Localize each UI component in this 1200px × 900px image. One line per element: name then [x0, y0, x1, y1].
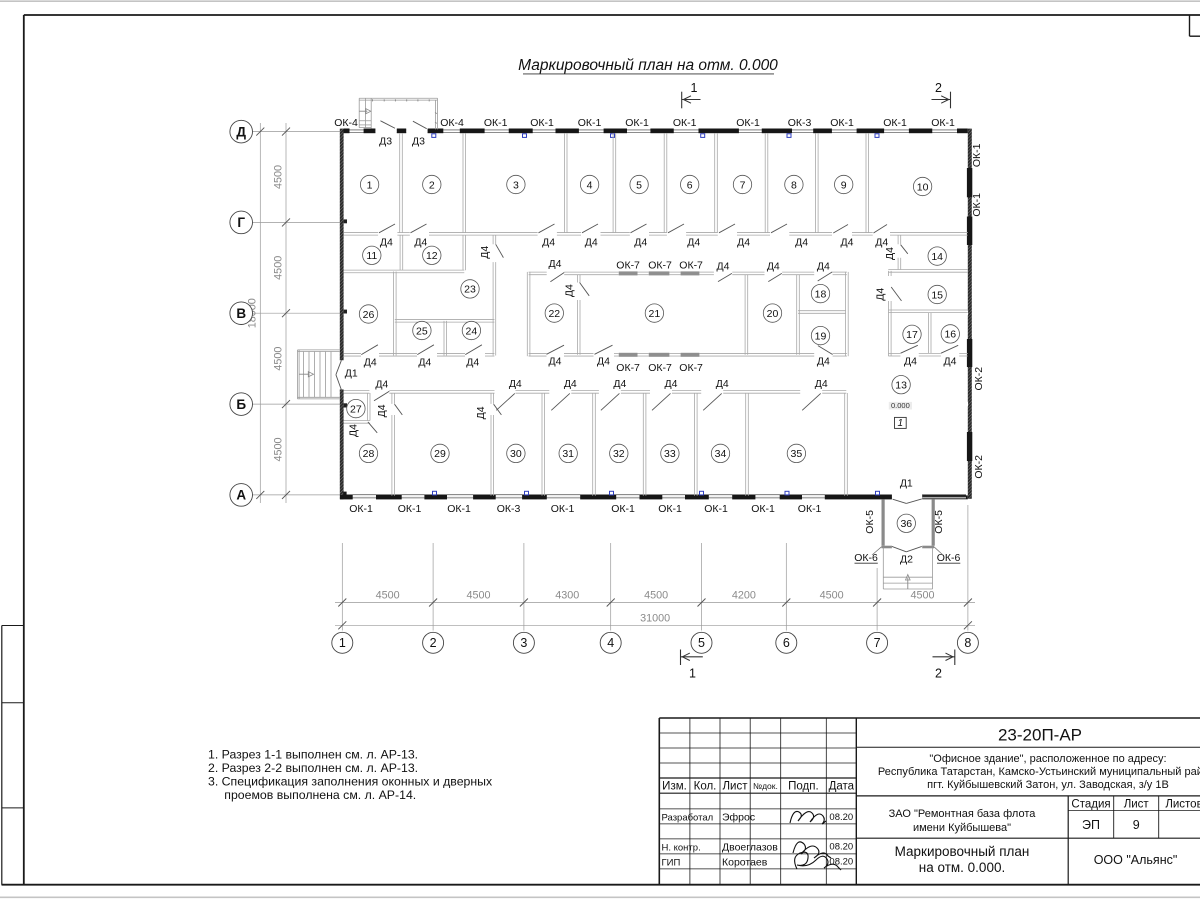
svg-text:Маркировочный план на отм. 0.0: Маркировочный план на отм. 0.000 — [518, 57, 778, 74]
svg-text:"Офисное здание", расположенно: "Офисное здание", расположенное по адрес… — [929, 753, 1166, 765]
svg-text:29: 29 — [434, 448, 446, 460]
svg-text:ООО "Альянс": ООО "Альянс" — [1094, 853, 1178, 867]
svg-text:8: 8 — [964, 636, 971, 650]
svg-text:Д4: Д4 — [380, 237, 393, 249]
svg-text:ОК-6: ОК-6 — [937, 552, 961, 564]
svg-text:20: 20 — [767, 308, 779, 320]
svg-text:Изм.: Изм. — [662, 781, 687, 793]
svg-text:Д4: Д4 — [479, 246, 491, 259]
svg-text:Д4: Д4 — [884, 247, 896, 260]
svg-text:26: 26 — [363, 309, 375, 321]
svg-text:0.000: 0.000 — [891, 401, 910, 410]
svg-text:8: 8 — [791, 179, 797, 191]
svg-text:ОК-4: ОК-4 — [334, 117, 358, 129]
svg-text:24: 24 — [466, 325, 478, 337]
svg-text:ОК-2: ОК-2 — [973, 455, 985, 479]
svg-text:4500: 4500 — [272, 347, 284, 371]
svg-text:Д4: Д4 — [466, 357, 479, 369]
svg-text:36: 36 — [900, 518, 912, 530]
svg-text:4: 4 — [587, 179, 593, 191]
svg-text:ОК-1: ОК-1 — [971, 193, 983, 217]
svg-text:Лист: Лист — [1124, 799, 1150, 811]
svg-text:3: 3 — [520, 636, 527, 650]
svg-text:1: 1 — [691, 81, 698, 95]
svg-text:пгт. Куйбышевский Затон, ул. З: пгт. Куйбышевский Затон, ул. Заводская, … — [927, 779, 1169, 791]
svg-text:15: 15 — [931, 289, 943, 301]
svg-text:2: 2 — [429, 179, 435, 191]
svg-text:1: 1 — [367, 179, 373, 191]
svg-text:на отм. 0.000.: на отм. 0.000. — [919, 860, 1005, 875]
svg-text:ОК-7: ОК-7 — [648, 362, 672, 374]
svg-text:5: 5 — [636, 179, 642, 191]
svg-text:3. Спецификация заполнения око: 3. Спецификация заполнения оконных и две… — [208, 774, 493, 788]
svg-text:Коротаев: Коротаев — [722, 856, 768, 868]
svg-text:ОК-1: ОК-1 — [830, 117, 854, 129]
svg-text:Д: Д — [236, 124, 246, 139]
svg-text:08.20: 08.20 — [829, 812, 853, 823]
svg-text:10: 10 — [917, 181, 929, 193]
svg-text:4500: 4500 — [272, 256, 284, 280]
svg-text:Д4: Д4 — [564, 378, 577, 390]
svg-text:Д4: Д4 — [717, 260, 730, 272]
svg-text:31: 31 — [562, 448, 574, 460]
svg-text:13: 13 — [895, 380, 907, 392]
svg-text:Д4: Д4 — [817, 356, 830, 368]
svg-text:6: 6 — [783, 636, 790, 650]
svg-text:Д4: Д4 — [376, 404, 388, 417]
svg-text:Д4: Д4 — [795, 237, 808, 249]
svg-text:В: В — [236, 306, 246, 321]
svg-text:№док.: №док. — [753, 781, 778, 791]
svg-text:Д3: Д3 — [412, 136, 425, 148]
svg-text:25: 25 — [416, 325, 428, 337]
svg-text:Д4: Д4 — [815, 378, 828, 390]
svg-text:Д4: Д4 — [475, 406, 487, 419]
svg-text:ОК-1: ОК-1 — [625, 117, 649, 129]
svg-text:ОК-1: ОК-1 — [736, 117, 760, 129]
svg-text:9: 9 — [841, 179, 847, 191]
svg-text:18: 18 — [815, 288, 827, 300]
svg-text:2: 2 — [935, 81, 942, 95]
svg-text:4500: 4500 — [820, 589, 844, 601]
svg-text:ОК-1: ОК-1 — [751, 503, 775, 515]
svg-text:ОК-7: ОК-7 — [616, 259, 640, 271]
svg-text:ОК-7: ОК-7 — [679, 259, 703, 271]
svg-text:Д4: Д4 — [564, 284, 576, 297]
svg-text:4500: 4500 — [272, 165, 284, 189]
svg-text:ОК-1: ОК-1 — [971, 143, 983, 167]
svg-text:Д2: Д2 — [900, 554, 913, 566]
svg-text:23-20П-АР: 23-20П-АР — [998, 726, 1082, 745]
svg-text:16: 16 — [944, 329, 956, 341]
svg-text:2: 2 — [430, 636, 437, 650]
svg-text:ОК-1: ОК-1 — [551, 503, 575, 515]
svg-text:4500: 4500 — [376, 589, 400, 601]
svg-text:32: 32 — [613, 448, 625, 460]
svg-text:Б: Б — [236, 397, 246, 412]
svg-text:ОК-1: ОК-1 — [931, 117, 955, 129]
svg-text:Д4: Д4 — [767, 260, 780, 272]
svg-text:Д4: Д4 — [597, 356, 610, 368]
svg-text:27: 27 — [350, 403, 362, 415]
svg-text:ОК-7: ОК-7 — [679, 362, 703, 374]
svg-text:19: 19 — [815, 330, 827, 342]
svg-text:Дата: Дата — [829, 781, 855, 793]
svg-text:Двоеглазов: Двоеглазов — [722, 841, 778, 853]
svg-text:ОК-5: ОК-5 — [933, 510, 945, 534]
svg-text:Н. контр.: Н. контр. — [662, 842, 701, 853]
svg-text:9: 9 — [1133, 818, 1140, 832]
svg-text:имени Куйбышева": имени Куйбышева" — [913, 822, 1011, 834]
svg-text:Д4: Д4 — [874, 288, 886, 301]
svg-text:ОК-1: ОК-1 — [673, 117, 697, 129]
svg-text:ОК-1: ОК-1 — [484, 117, 508, 129]
svg-text:08.20: 08.20 — [829, 857, 853, 868]
svg-text:Д4: Д4 — [549, 356, 562, 368]
svg-text:7: 7 — [740, 179, 746, 191]
svg-text:4500: 4500 — [272, 437, 284, 461]
svg-text:11: 11 — [366, 250, 377, 262]
svg-text:1. Разрез 1-1 выполнен см. л.: 1. Разрез 1-1 выполнен см. л. АР-13. — [208, 748, 418, 762]
svg-text:ОК-7: ОК-7 — [648, 259, 672, 271]
svg-text:ОК-7: ОК-7 — [616, 362, 640, 374]
svg-text:ОК-3: ОК-3 — [788, 117, 812, 129]
svg-text:3: 3 — [513, 179, 519, 191]
svg-text:5: 5 — [698, 636, 705, 650]
svg-text:ОК-4: ОК-4 — [440, 117, 464, 129]
svg-text:ЭП: ЭП — [1082, 818, 1100, 832]
svg-text:4500: 4500 — [644, 589, 668, 601]
svg-text:Д4: Д4 — [687, 237, 700, 249]
svg-text:Эфрос: Эфрос — [722, 811, 755, 823]
svg-text:ОК-6: ОК-6 — [854, 552, 878, 564]
svg-text:ГИП: ГИП — [662, 857, 681, 868]
svg-text:Д4: Д4 — [904, 355, 917, 367]
svg-text:ОК-3: ОК-3 — [497, 503, 521, 515]
svg-text:4300: 4300 — [555, 589, 579, 601]
svg-text:22: 22 — [548, 308, 560, 320]
svg-text:ОК-1: ОК-1 — [578, 117, 602, 129]
svg-text:Д4: Д4 — [665, 378, 678, 390]
svg-text:ОК-1: ОК-1 — [530, 117, 554, 129]
svg-text:4: 4 — [607, 636, 614, 650]
svg-text:Д4: Д4 — [375, 379, 388, 391]
svg-text:ОК-2: ОК-2 — [973, 367, 985, 391]
svg-text:Стадия: Стадия — [1071, 799, 1110, 811]
svg-text:6: 6 — [687, 179, 693, 191]
svg-text:ЗАО "Ремонтная база флота: ЗАО "Ремонтная база флота — [889, 808, 1037, 820]
svg-text:Д4: Д4 — [414, 237, 427, 249]
svg-text:7: 7 — [874, 636, 881, 650]
svg-text:23: 23 — [464, 284, 476, 296]
svg-text:35: 35 — [791, 448, 803, 460]
svg-text:ОК-1: ОК-1 — [704, 503, 728, 515]
svg-text:ОК-1: ОК-1 — [883, 117, 907, 129]
svg-text:ОК-1: ОК-1 — [447, 503, 471, 515]
svg-text:Д4: Д4 — [613, 378, 626, 390]
svg-text:14: 14 — [931, 251, 943, 263]
svg-text:Д4: Д4 — [716, 378, 729, 390]
svg-text:Д4: Д4 — [875, 237, 888, 249]
svg-text:Д4: Д4 — [418, 357, 431, 369]
svg-text:4500: 4500 — [466, 589, 490, 601]
svg-text:Маркировочный план: Маркировочный план — [895, 844, 1030, 859]
svg-text:Д1: Д1 — [900, 478, 913, 490]
svg-text:Д4: Д4 — [737, 237, 750, 249]
svg-text:Д1: Д1 — [345, 367, 358, 379]
svg-text:4500: 4500 — [910, 589, 934, 601]
svg-text:1: 1 — [898, 418, 904, 429]
svg-text:Д4: Д4 — [348, 424, 360, 437]
svg-text:Д4: Д4 — [364, 357, 377, 369]
svg-text:2: 2 — [935, 667, 942, 681]
svg-text:4200: 4200 — [732, 589, 756, 601]
svg-text:Д4: Д4 — [634, 237, 647, 249]
svg-text:ОК-1: ОК-1 — [658, 503, 682, 515]
svg-text:17: 17 — [906, 329, 918, 341]
svg-text:проемов выполнена см. л. АР-14: проемов выполнена см. л. АР-14. — [224, 788, 416, 802]
svg-text:Подп.: Подп. — [788, 781, 819, 793]
svg-text:Лист: Лист — [723, 781, 749, 793]
svg-text:Д4: Д4 — [509, 378, 522, 390]
svg-text:33: 33 — [664, 448, 676, 460]
svg-text:Д3: Д3 — [379, 136, 392, 148]
svg-text:Д4: Д4 — [841, 237, 854, 249]
svg-text:Листов: Листов — [1165, 799, 1200, 811]
svg-text:ОК-1: ОК-1 — [611, 503, 635, 515]
svg-text:1: 1 — [339, 636, 346, 650]
svg-text:Д4: Д4 — [817, 260, 830, 272]
svg-text:Д4: Д4 — [549, 258, 562, 270]
svg-text:21: 21 — [649, 308, 661, 320]
svg-text:28: 28 — [363, 448, 375, 460]
svg-text:А: А — [236, 488, 246, 503]
svg-text:ОК-1: ОК-1 — [398, 503, 422, 515]
svg-text:ОК-1: ОК-1 — [349, 503, 373, 515]
svg-text:Г: Г — [237, 215, 245, 230]
svg-text:2. Разрез 2-2 выполнен см. л.: 2. Разрез 2-2 выполнен см. л. АР-13. — [208, 761, 418, 775]
svg-text:08.20: 08.20 — [829, 842, 853, 853]
svg-text:Разработал: Разработал — [662, 812, 714, 823]
svg-text:1: 1 — [689, 667, 696, 681]
svg-text:34: 34 — [715, 448, 727, 460]
svg-text:31000: 31000 — [640, 612, 670, 624]
svg-text:ОК-5: ОК-5 — [864, 510, 876, 534]
svg-text:ОК-1: ОК-1 — [798, 503, 822, 515]
svg-text:Д4: Д4 — [944, 355, 957, 367]
svg-text:Д4: Д4 — [585, 237, 598, 249]
svg-text:Республика Татарстан, Камско-У: Республика Татарстан, Камско-Устьинский … — [878, 766, 1200, 778]
svg-text:Д4: Д4 — [542, 237, 555, 249]
svg-text:Кол.: Кол. — [694, 781, 717, 793]
svg-text:30: 30 — [510, 448, 522, 460]
svg-text:12: 12 — [426, 250, 438, 262]
